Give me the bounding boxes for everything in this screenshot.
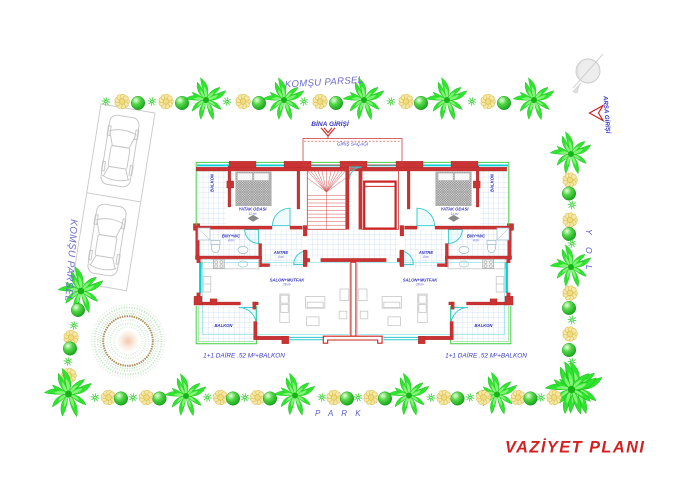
svg-text:1+1 DAİRE .52 M²+BALKON: 1+1 DAİRE .52 M²+BALKON <box>445 352 527 360</box>
svg-text:28 m²: 28 m² <box>415 283 425 287</box>
svg-text:11 m²: 11 m² <box>451 212 460 216</box>
svg-text:BALKON: BALKON <box>475 323 494 328</box>
svg-text:28 m²: 28 m² <box>282 283 292 287</box>
svg-text:11 m²: 11 m² <box>249 212 258 216</box>
svg-text:P A R K: P A R K <box>315 409 364 418</box>
svg-text:4 m²: 4 m² <box>473 239 480 243</box>
svg-text:4 m²: 4 m² <box>423 255 430 259</box>
svg-text:YATAK ODASI: YATAK ODASI <box>441 207 470 212</box>
svg-text:4 m²: 4 m² <box>228 239 235 243</box>
svg-text:BALKON: BALKON <box>215 323 234 328</box>
svg-text:O: O <box>584 247 594 254</box>
svg-text:BALKON: BALKON <box>490 173 495 192</box>
svg-text:BALKON: BALKON <box>210 173 215 192</box>
svg-text:YATAK ODASI: YATAK ODASI <box>239 207 268 212</box>
svg-text:GİRİŞ SAÇAĞI: GİRİŞ SAÇAĞI <box>337 141 369 147</box>
svg-text:L: L <box>584 265 594 270</box>
svg-text:BİNA GİRİŞİ: BİNA GİRİŞİ <box>311 120 350 128</box>
svg-text:VAZİYET PLANI: VAZİYET PLANI <box>505 439 645 457</box>
svg-text:1+1 DAİRE .52 M²+BALKON: 1+1 DAİRE .52 M²+BALKON <box>203 352 285 360</box>
svg-text:4 m²: 4 m² <box>278 255 285 259</box>
